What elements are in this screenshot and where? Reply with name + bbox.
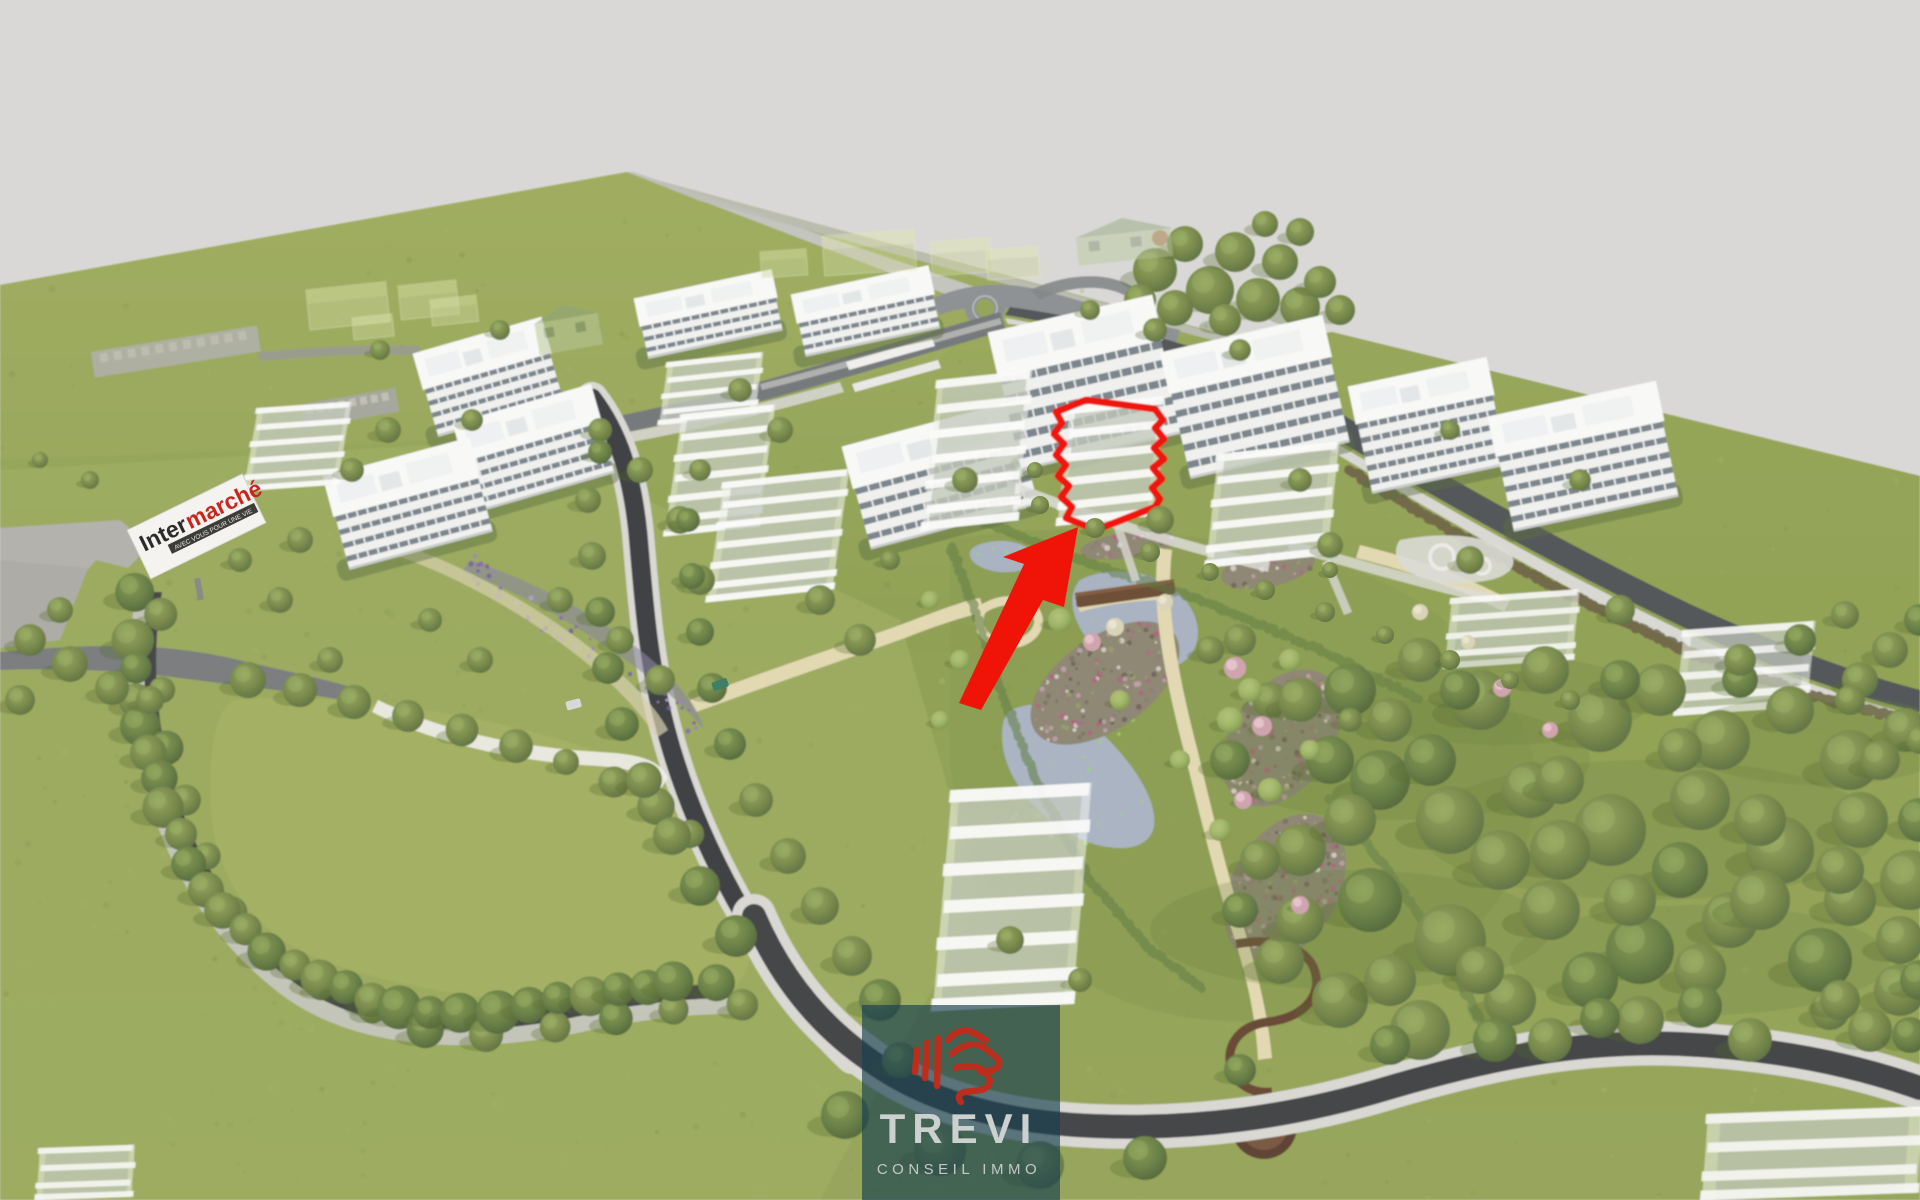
svg-text:TREVI: TREVI bbox=[880, 1105, 1039, 1152]
svg-text:CONSEIL IMMO: CONSEIL IMMO bbox=[877, 1161, 1041, 1178]
